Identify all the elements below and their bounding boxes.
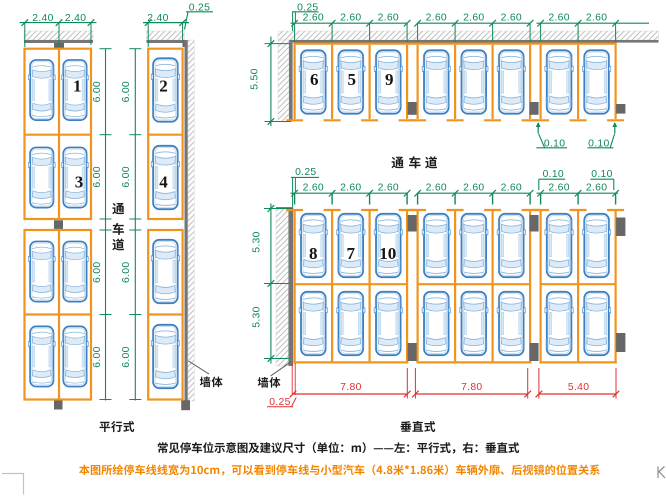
svg-text:7.80: 7.80 <box>340 382 361 393</box>
svg-text:2.40: 2.40 <box>147 13 168 24</box>
svg-text:7.80: 7.80 <box>461 382 482 393</box>
svg-text:5: 5 <box>348 70 357 89</box>
svg-text:6.00: 6.00 <box>121 262 132 283</box>
svg-text:2.60: 2.60 <box>426 12 447 23</box>
svg-text:6.00: 6.00 <box>121 166 132 187</box>
svg-text:3: 3 <box>75 173 84 192</box>
svg-text:0.25: 0.25 <box>295 167 316 178</box>
svg-text:2.60: 2.60 <box>340 183 361 194</box>
svg-text:7: 7 <box>347 244 356 263</box>
svg-text:6.00: 6.00 <box>121 81 132 102</box>
svg-text:2.60: 2.60 <box>378 12 399 23</box>
svg-text:2.60: 2.60 <box>548 12 569 23</box>
svg-text:5.40: 5.40 <box>568 382 589 393</box>
svg-text:5.30: 5.30 <box>252 306 263 327</box>
svg-text:0.10: 0.10 <box>591 169 612 180</box>
svg-text:2.40: 2.40 <box>32 13 53 24</box>
svg-text:0.10: 0.10 <box>588 138 609 149</box>
svg-text:2.60: 2.60 <box>340 12 361 23</box>
svg-text:10: 10 <box>379 244 396 263</box>
svg-text:2.60: 2.60 <box>378 183 399 194</box>
svg-text:2.60: 2.60 <box>426 183 447 194</box>
svg-text:6.00: 6.00 <box>92 81 103 102</box>
svg-text:2.60: 2.60 <box>303 183 324 194</box>
svg-text:5.30: 5.30 <box>252 231 263 252</box>
svg-text:6: 6 <box>310 70 319 89</box>
svg-text:2: 2 <box>159 76 168 95</box>
svg-text:2.40: 2.40 <box>65 13 86 24</box>
svg-text:2.60: 2.60 <box>586 183 607 194</box>
svg-text:0.10: 0.10 <box>543 169 564 180</box>
svg-text:6.00: 6.00 <box>92 262 103 283</box>
svg-text:5.50: 5.50 <box>249 68 260 89</box>
svg-text:2.60: 2.60 <box>463 183 484 194</box>
svg-text:6.00: 6.00 <box>92 346 103 367</box>
svg-text:0.10: 0.10 <box>544 138 565 149</box>
svg-text:6.00: 6.00 <box>92 166 103 187</box>
svg-text:0.25: 0.25 <box>269 397 290 408</box>
svg-text:2.60: 2.60 <box>548 183 569 194</box>
svg-text:9: 9 <box>385 70 394 89</box>
svg-text:2.60: 2.60 <box>586 12 607 23</box>
svg-text:1: 1 <box>73 76 82 95</box>
svg-text:2.60: 2.60 <box>463 12 484 23</box>
svg-text:6.00: 6.00 <box>121 346 132 367</box>
svg-text:8: 8 <box>309 244 318 263</box>
svg-text:2.60: 2.60 <box>303 12 324 23</box>
svg-text:4: 4 <box>159 173 168 192</box>
svg-text:2.60: 2.60 <box>501 12 522 23</box>
svg-text:2.60: 2.60 <box>501 183 522 194</box>
